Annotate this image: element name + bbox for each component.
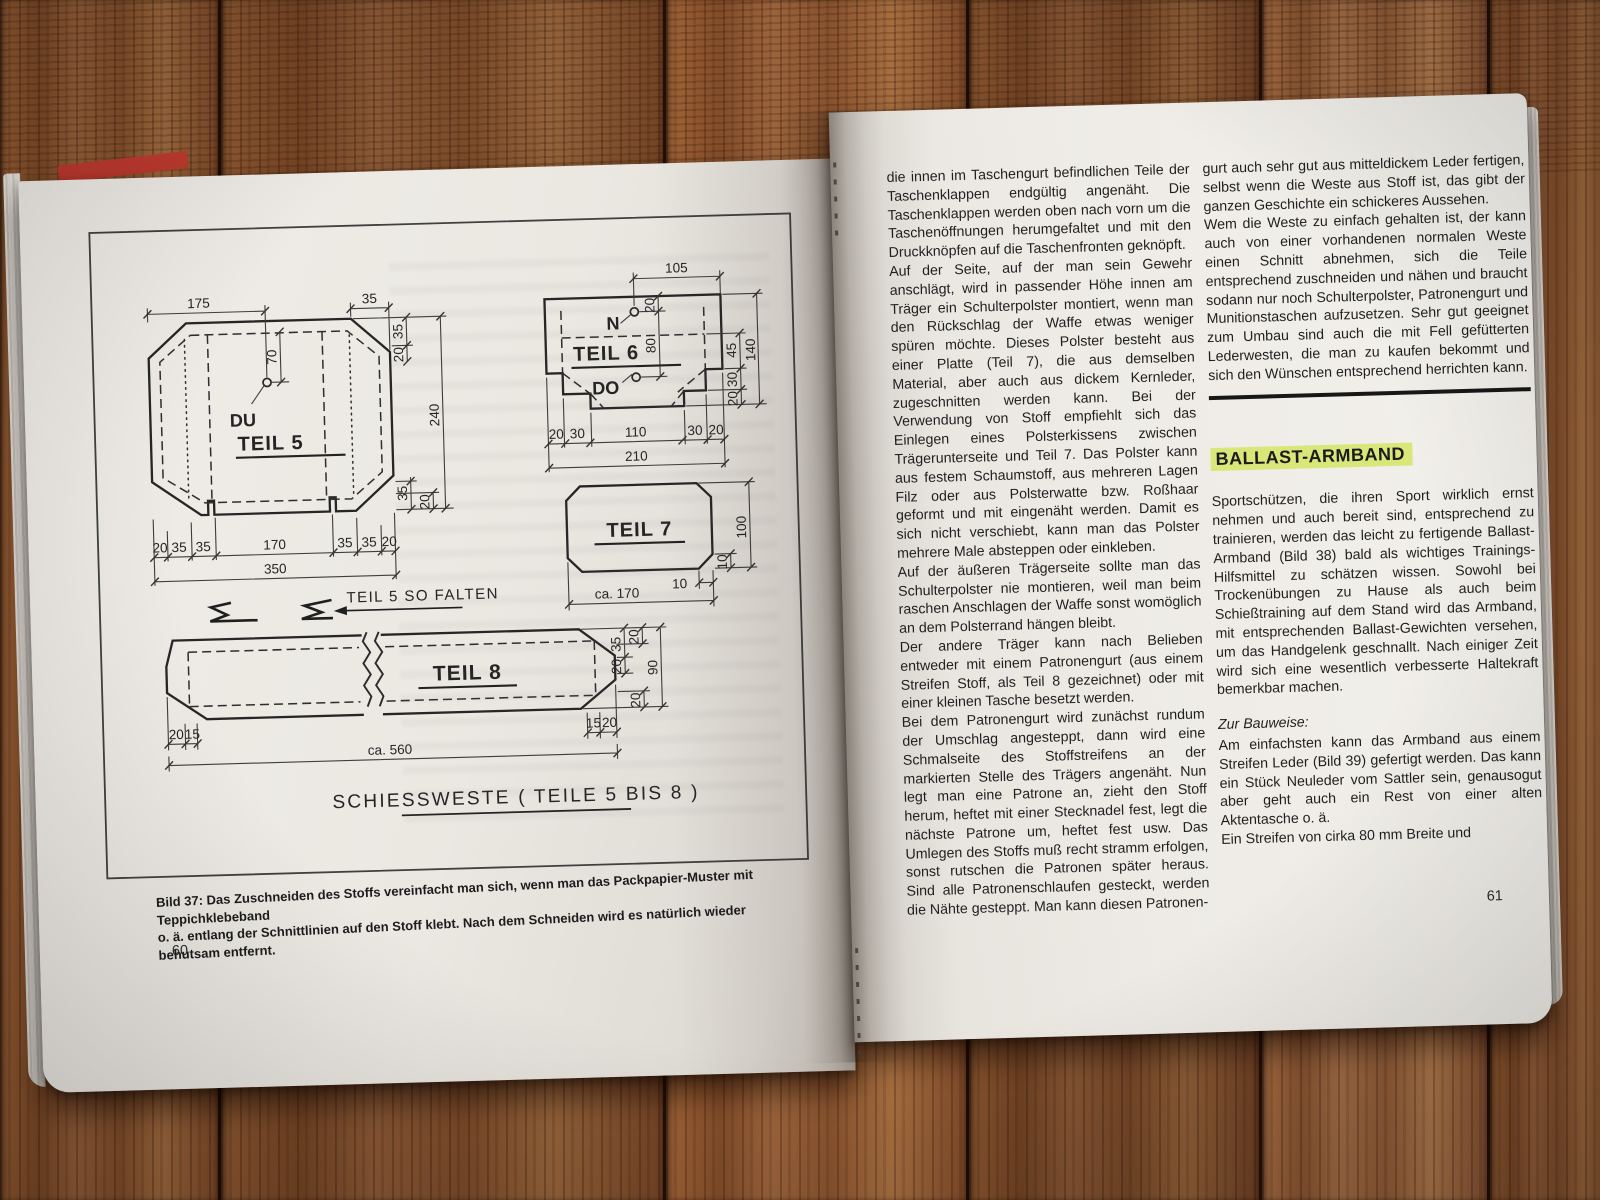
dim-label: 20 bbox=[725, 390, 740, 406]
part-title: TEIL 7 bbox=[606, 518, 673, 542]
dim-label: 10 bbox=[672, 576, 688, 591]
drawing-title: SCHIESSWESTE ( TEILE 5 BIS 8 ) bbox=[332, 782, 700, 813]
buttonhole-mark bbox=[263, 378, 271, 386]
teil7-drawing: TEIL 7 100 10 10 ca. 170 bbox=[562, 478, 759, 611]
open-book: DU TEIL 5 175 35 35 20 70 240 35 20 20 3… bbox=[5, 91, 1568, 1086]
dim-label: 15 bbox=[586, 715, 602, 730]
dim-label: 20 bbox=[628, 692, 643, 708]
part-title: TEIL 5 bbox=[237, 432, 304, 456]
fold-symbol bbox=[301, 600, 333, 619]
dim-label: 110 bbox=[625, 424, 647, 440]
dim-label: 105 bbox=[665, 260, 688, 276]
section-heading-ballast-armband: BALLAST-ARMBAND bbox=[1210, 442, 1413, 471]
dim-label: 30 bbox=[687, 423, 703, 438]
buttonhole-mark bbox=[632, 373, 640, 381]
right-page: die innen im Taschengurt befindlichen Te… bbox=[829, 93, 1553, 1042]
dim-label: 140 bbox=[743, 338, 759, 361]
dim-label: 10 bbox=[715, 554, 730, 570]
dim-label: 100 bbox=[734, 515, 750, 538]
dim-label: 20 bbox=[626, 629, 641, 645]
text-column-1: die innen im Taschengurt befindlichen Te… bbox=[886, 161, 1210, 921]
dim-label: 35 bbox=[362, 291, 378, 306]
dim-label: 20 bbox=[642, 297, 657, 313]
page-number-left: 60 bbox=[172, 943, 189, 959]
arrow-left-icon bbox=[334, 606, 347, 615]
paragraph: Der andere Träger kann nach Belieben ent… bbox=[899, 630, 1204, 714]
part-title: TEIL 8 bbox=[433, 661, 503, 686]
page-number-right: 61 bbox=[1487, 888, 1504, 904]
dim-label: 45 bbox=[724, 343, 739, 359]
dim-label: 20 bbox=[152, 540, 168, 555]
dim-label: 80 bbox=[643, 337, 658, 353]
section-divider-rule bbox=[1209, 387, 1531, 400]
fold-symbol bbox=[210, 602, 258, 621]
paragraph: Auf der äußeren Trägerseite sollte man d… bbox=[897, 555, 1202, 639]
teil6-drawing: N DO TEIL 6 105 20 80 45 30 20 140 20 30… bbox=[539, 258, 768, 472]
left-page: DU TEIL 5 175 35 35 20 70 240 35 20 20 3… bbox=[18, 159, 855, 1093]
dim-label: 20 bbox=[391, 346, 406, 362]
dim-label: 210 bbox=[625, 448, 648, 464]
dim-label: 30 bbox=[570, 426, 586, 441]
dim-label: 20 bbox=[417, 494, 432, 510]
dim-label: 15 bbox=[185, 726, 201, 741]
hole-label: N bbox=[606, 313, 620, 333]
buttonhole-mark bbox=[630, 308, 638, 316]
dim-label: ca. 170 bbox=[595, 585, 640, 601]
dim-label: 35 bbox=[395, 486, 410, 502]
teil5-drawing: DU TEIL 5 175 35 35 20 70 240 35 20 20 3… bbox=[143, 289, 456, 586]
dim-label: 240 bbox=[427, 403, 443, 426]
hole-label: DO bbox=[592, 378, 620, 399]
paragraph: Auf der Seite, auf der man sein Gewehr a… bbox=[889, 255, 1200, 564]
dim-label: 175 bbox=[187, 296, 210, 312]
part-title: TEIL 6 bbox=[573, 342, 640, 366]
dim-label: 20 bbox=[708, 422, 724, 437]
dim-label: 35 bbox=[337, 535, 353, 550]
dim-label: 90 bbox=[645, 659, 660, 675]
dim-label: 170 bbox=[263, 537, 286, 553]
dim-label: 350 bbox=[264, 561, 287, 577]
dim-label: 20 bbox=[169, 727, 185, 742]
paragraph: Bei dem Patronengurt wird zunächst rundu… bbox=[902, 705, 1211, 920]
pattern-diagram: DU TEIL 5 175 35 35 20 70 240 35 20 20 3… bbox=[88, 212, 810, 880]
dim-label: 35 bbox=[361, 534, 377, 549]
bild37-technical-drawing: DU TEIL 5 175 35 35 20 70 240 35 20 20 3… bbox=[88, 212, 810, 880]
dim-label: 35 bbox=[171, 540, 187, 555]
dim-label: 30 bbox=[725, 371, 740, 387]
fold-note-text: TEIL 5 SO FALTEN bbox=[346, 585, 499, 606]
dim-label: 70 bbox=[264, 349, 279, 365]
teil8-drawing: TEIL 8 20 15 15 20 ca. 560 35 20 20 90 2… bbox=[161, 622, 669, 772]
dim-label: 35 bbox=[195, 539, 211, 554]
paragraph: die innen im Taschengurt befindlichen Te… bbox=[886, 161, 1192, 263]
dim-label: 20 bbox=[381, 534, 397, 549]
dim-label: ca. 560 bbox=[368, 742, 413, 758]
figure-caption: Bild 37: Das Zuschneiden des Stoffs vere… bbox=[156, 863, 807, 963]
paragraph: gurt auch sehr gut aus mitteldickem Lede… bbox=[1202, 151, 1525, 216]
text-column-2: gurt auch sehr gut aus mitteldickem Lede… bbox=[1202, 151, 1543, 849]
paragraph: Sportschützen, die ihren Sport wirklich … bbox=[1212, 484, 1540, 700]
dim-label: 35 bbox=[608, 637, 623, 653]
dim-label: 20 bbox=[548, 427, 564, 442]
hole-label: DU bbox=[230, 410, 257, 431]
paragraph: Am einfachsten kann das Armband aus eine… bbox=[1218, 728, 1542, 831]
dim-label: 35 bbox=[390, 324, 405, 340]
paragraph: Wem die Weste zu einfach gehalten ist, d… bbox=[1204, 208, 1531, 386]
dim-label: 20 bbox=[602, 715, 618, 730]
dim-label: 20 bbox=[609, 658, 624, 674]
fold-instruction: TEIL 5 SO FALTEN bbox=[210, 585, 500, 621]
